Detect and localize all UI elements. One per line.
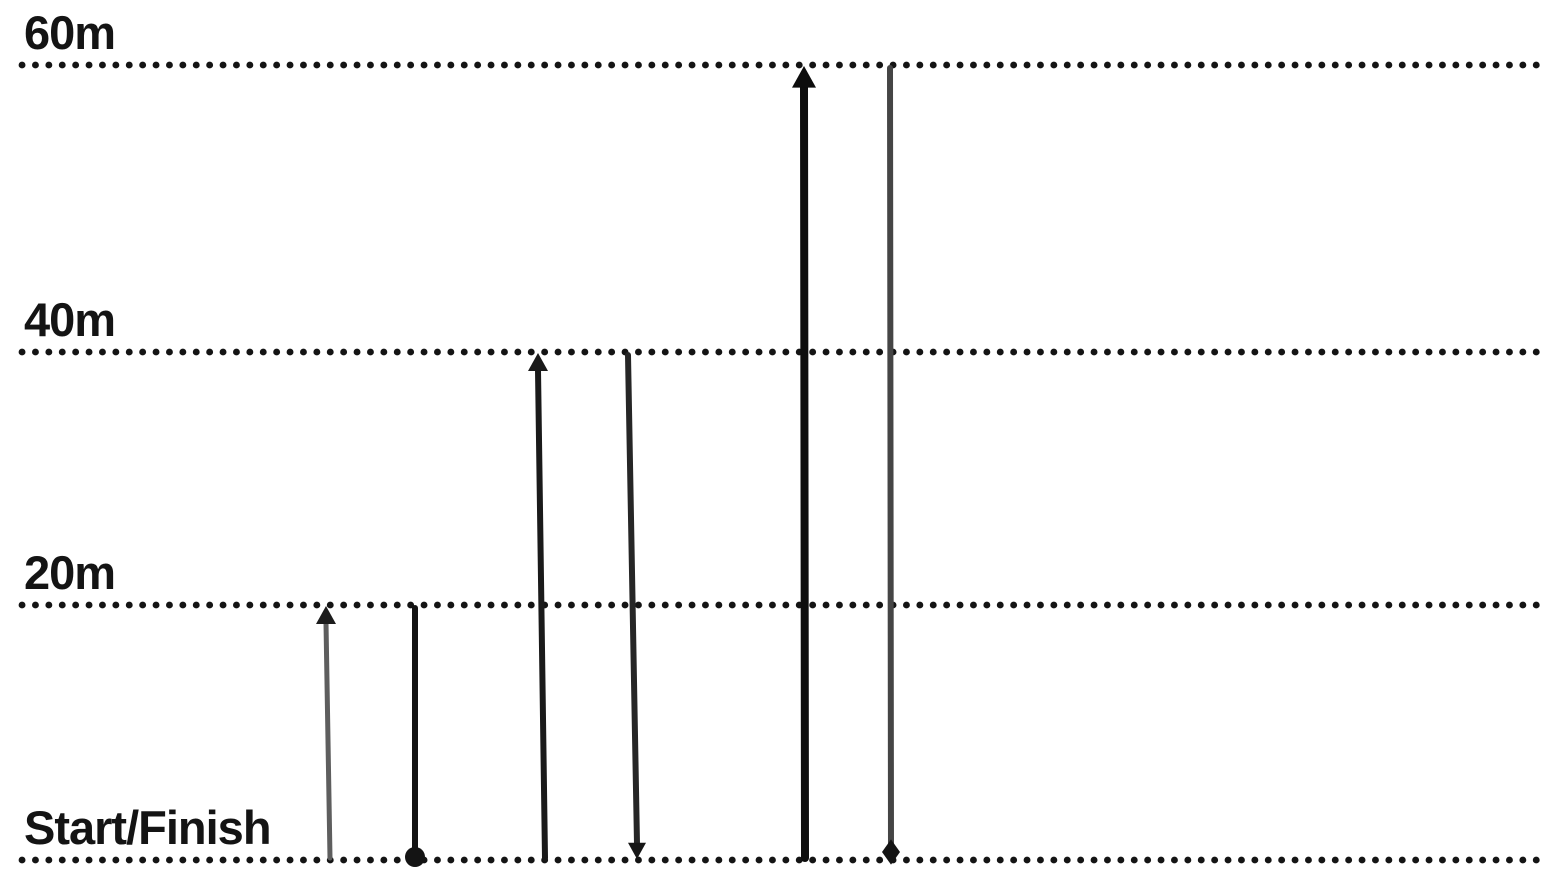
arrow-run-3-out-head [792,66,816,88]
arrow-run-2-back-line [628,355,637,844]
arrow-run-2-back-head [628,843,646,859]
shuttle-run-course-diagram: 60m 40m 20m Start/Finish [0,0,1567,893]
arrow-run-3-out-line [804,87,805,858]
arrow-run-1-back-head [405,847,425,867]
arrow-run-3-back-head [882,839,900,864]
arrow-run-2-out-head [528,353,548,371]
label-40m: 40m [24,296,115,343]
arrow-run-3-back-line [890,68,891,852]
arrow-run-1-out-line [326,623,330,858]
label-20m: 20m [24,549,115,596]
label-start-finish: Start/Finish [24,804,271,851]
arrow-run-2-out-line [538,370,545,858]
label-60m: 60m [24,9,115,56]
course-diagram-svg [0,0,1567,893]
arrow-run-1-out-head [316,606,336,624]
